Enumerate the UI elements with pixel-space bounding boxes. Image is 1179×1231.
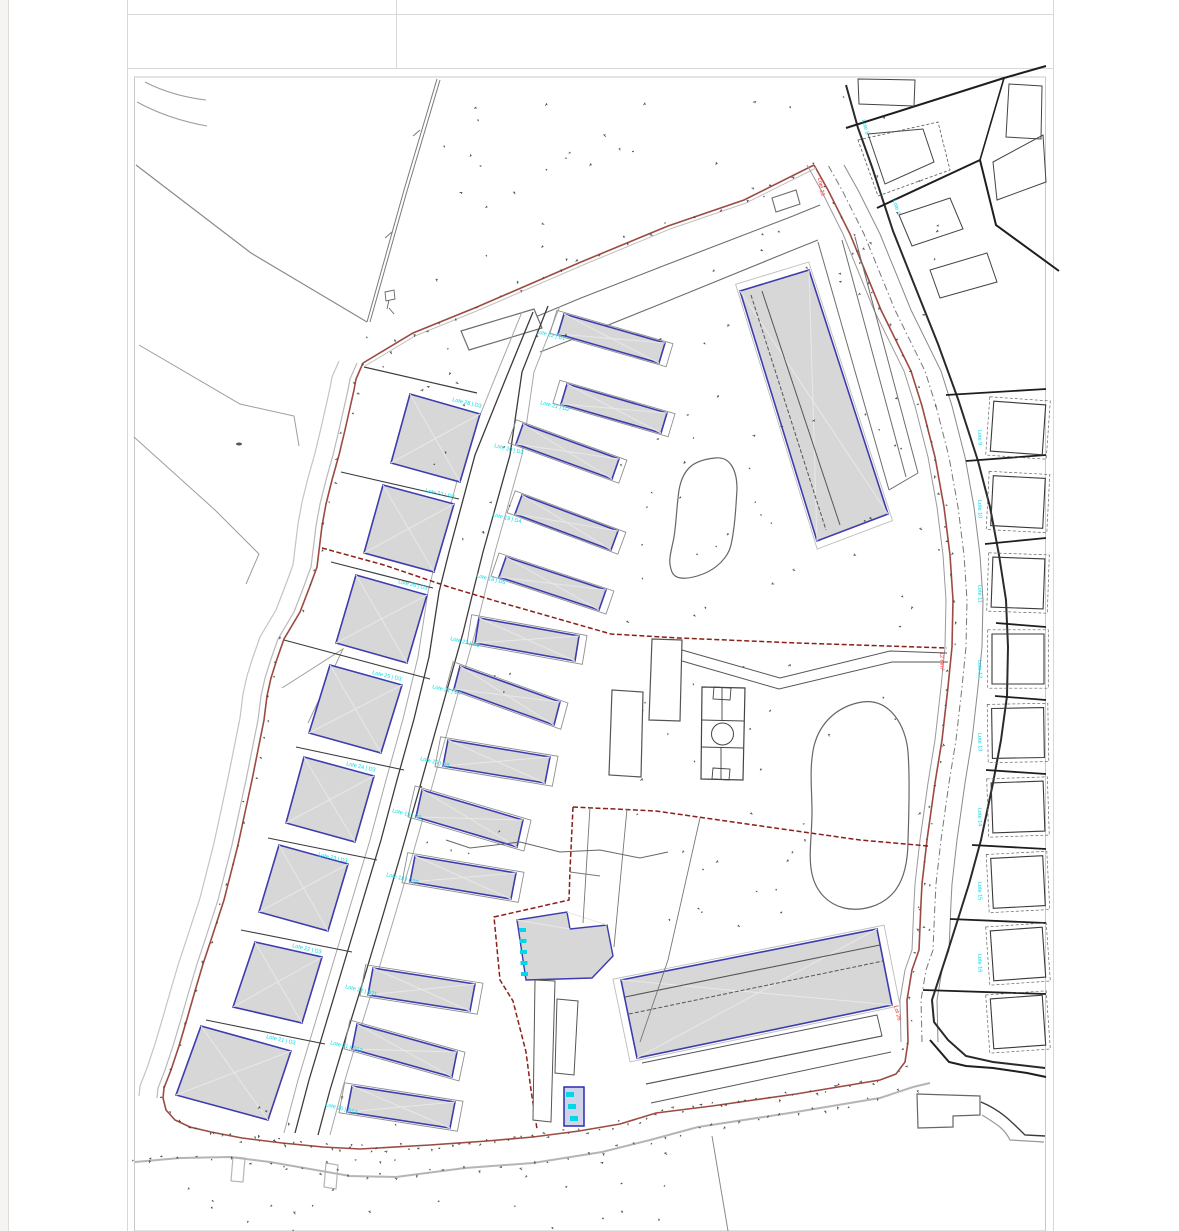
svg-text:12 mm²: 12 mm² bbox=[938, 652, 945, 671]
svg-text:Lote 16: Lote 16 bbox=[976, 954, 983, 973]
svg-text:Lote 9: Lote 9 bbox=[976, 430, 983, 445]
svg-text:Lote 11: Lote 11 bbox=[976, 585, 983, 603]
svg-text:Lote 10: Lote 10 bbox=[976, 500, 983, 519]
svg-text:Lote 14: Lote 14 bbox=[976, 808, 983, 827]
svg-text:Lote 15: Lote 15 bbox=[976, 882, 983, 901]
svg-text:Lote 12: Lote 12 bbox=[976, 660, 983, 679]
svg-text:Lote 13: Lote 13 bbox=[976, 733, 983, 752]
